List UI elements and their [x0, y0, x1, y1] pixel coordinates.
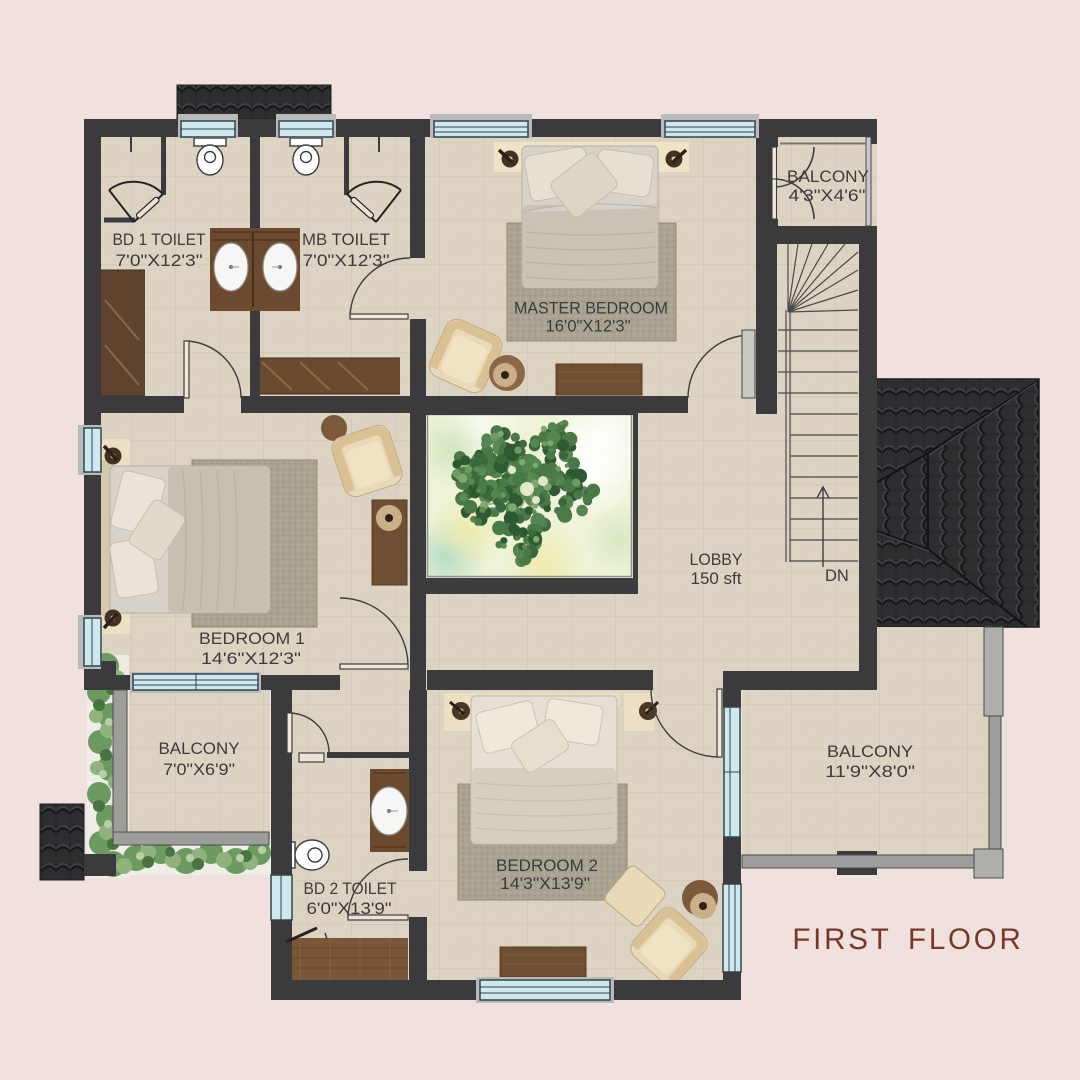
svg-text:150 sft: 150 sft	[691, 570, 742, 588]
svg-text:MB TOILET: MB TOILET	[302, 231, 390, 249]
svg-text:11'9"X8'0": 11'9"X8'0"	[825, 763, 915, 781]
svg-text:BD 1 TOILET: BD 1 TOILET	[113, 231, 206, 249]
svg-text:BD 2 TOILET: BD 2 TOILET	[304, 880, 397, 898]
svg-text:BEDROOM 2: BEDROOM 2	[496, 857, 598, 875]
svg-text:7'0"X6'9": 7'0"X6'9"	[163, 761, 235, 779]
svg-text:6'0"X13'9": 6'0"X13'9"	[307, 900, 392, 918]
svg-text:LOBBY: LOBBY	[690, 551, 743, 569]
svg-text:7'0"X12'3": 7'0"X12'3"	[116, 252, 203, 270]
svg-text:7'0"X12'3": 7'0"X12'3"	[303, 252, 390, 270]
svg-text:BALCONY: BALCONY	[787, 168, 869, 186]
svg-text:MASTER BEDROOM: MASTER BEDROOM	[514, 300, 668, 318]
svg-text:14'6"X12'3": 14'6"X12'3"	[201, 650, 301, 668]
svg-text:DN: DN	[825, 567, 849, 585]
svg-text:4'3"X4'6": 4'3"X4'6"	[789, 187, 866, 205]
svg-text:14'3"X13'9": 14'3"X13'9"	[500, 875, 590, 893]
svg-text:FIRST FLOOR: FIRST FLOOR	[792, 923, 1023, 956]
svg-text:16'0"X12'3": 16'0"X12'3"	[546, 318, 631, 336]
svg-text:BEDROOM 1: BEDROOM 1	[199, 630, 305, 648]
svg-text:BALCONY: BALCONY	[159, 740, 240, 758]
svg-text:BALCONY: BALCONY	[827, 743, 913, 761]
